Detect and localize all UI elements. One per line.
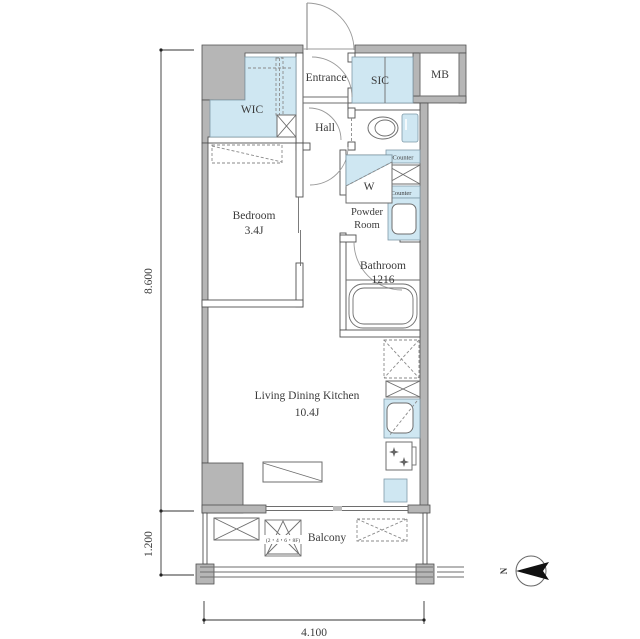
room-label-entrance: Entrance — [306, 72, 347, 84]
room-label-wic: WIC — [241, 104, 264, 116]
hatch-floors-label: (2・4・6・8F) — [266, 537, 300, 544]
north-label: N — [499, 567, 509, 574]
balcony-window — [266, 506, 408, 511]
dim-label-1200: 1.200 — [143, 531, 155, 557]
dimension-width: 4.100 — [202, 601, 425, 639]
floor-plan: Counter Counter W — [0, 0, 640, 639]
room-label-powder-2: Room — [354, 220, 380, 231]
toilet — [368, 114, 418, 142]
washbasin — [388, 198, 420, 240]
bathtub — [346, 280, 420, 328]
counter-top-label: Counter — [393, 155, 415, 162]
kitchen-counter-end — [384, 479, 407, 502]
entrance-door — [303, 3, 355, 50]
balcony-equipment-box — [214, 518, 259, 540]
bedroom-sliding-door — [299, 197, 301, 266]
dimension-main-height: 8.600 — [143, 48, 194, 512]
dim-label-4100: 4.100 — [301, 627, 327, 639]
room-label-balcony: Balcony — [308, 532, 347, 544]
room-label-sic: SIC — [371, 75, 389, 87]
room-label-ldk: Living Dining Kitchen — [255, 390, 360, 402]
room-label-ldk-size: 10.4J — [295, 407, 320, 419]
stove — [386, 442, 416, 470]
room-label-bathroom-size: 1216 — [372, 274, 395, 286]
room-label-mb: MB — [431, 69, 449, 81]
north-arrow-icon — [516, 562, 549, 580]
balcony-dashed-box — [357, 519, 407, 541]
washing-machine: W — [346, 155, 392, 203]
ldk-counter — [263, 462, 322, 482]
wic-pipe-space — [277, 115, 296, 137]
dim-label-8600: 8.600 — [143, 268, 155, 294]
room-label-powder-1: Powder — [351, 207, 384, 218]
floor-plan-page: Counter Counter W — [0, 0, 640, 639]
pipe-space-kitchen — [386, 381, 420, 397]
refrigerator-space — [384, 340, 419, 378]
room-label-bathroom: Bathroom — [360, 260, 406, 272]
bedroom-closet-dashed — [212, 145, 282, 163]
entrance-step — [303, 97, 348, 103]
room-label-hall: Hall — [315, 122, 335, 134]
room-label-bedroom: Bedroom — [233, 210, 276, 222]
north-arrow: N — [499, 556, 549, 586]
kitchen-sink — [384, 399, 420, 438]
washer-label: W — [364, 181, 375, 193]
dimension-balcony-depth: 1.200 — [143, 511, 194, 577]
room-label-bedroom-size: 3.4J — [245, 225, 264, 237]
window-lock — [333, 506, 342, 511]
evacuation-hatch: (2・4・6・8F) — [262, 520, 304, 556]
counter-bottom-label: Counter — [391, 190, 413, 197]
